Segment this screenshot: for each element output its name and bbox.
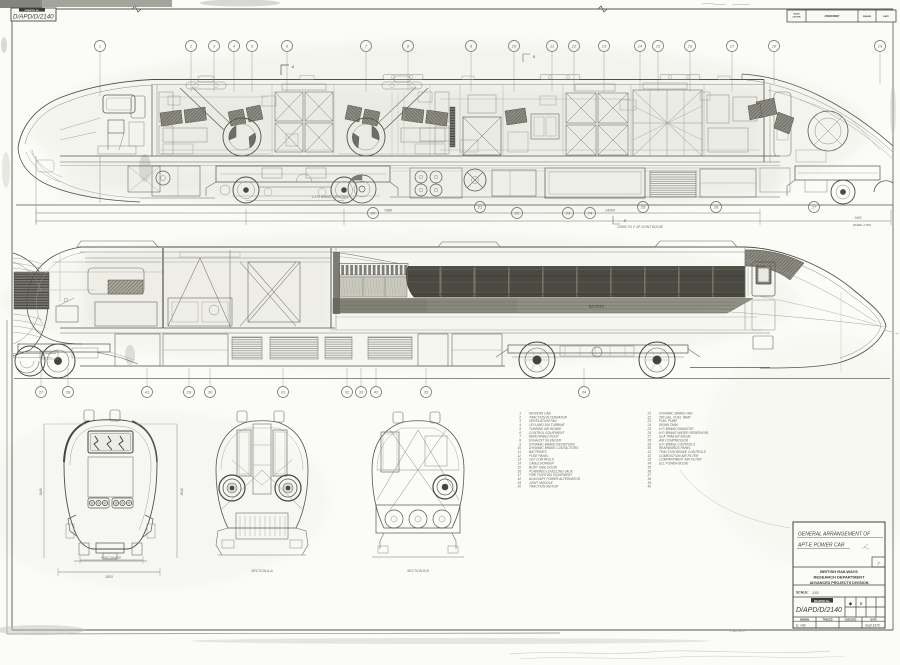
svg-text:© BR 1970: © BR 1970 [730,629,745,633]
svg-text:28: 28 [65,390,71,395]
svg-text:D/APD/D/2140: D/APD/D/2140 [13,14,54,21]
svg-text:12: 12 [572,44,577,49]
svg-text:CHECKED: CHECKED [845,618,857,621]
svg-text:7380: 7380 [384,209,392,213]
svg-text:3040: 3040 [180,488,184,495]
svg-text:D/APD/D/2140: D/APD/D/2140 [796,607,842,614]
svg-text:25: 25 [640,205,646,210]
svg-text:SZ-2016: SZ-2016 [588,304,604,309]
svg-text:◆: ◆ [849,601,853,606]
svg-text:17: 17 [730,44,735,49]
svg-text:41: 41 [145,390,149,395]
svg-text:26: 26 [713,205,719,210]
svg-text:11: 11 [550,44,554,49]
svg-text:35: 35 [424,390,429,395]
svg-text:RESEARCH DEPARTMENT: RESEARCH DEPARTMENT [813,575,865,580]
svg-text:27: 27 [38,390,44,395]
svg-text:32: 32 [345,390,350,395]
svg-text:DRAWN: DRAWN [863,15,872,18]
svg-text:42: 42 [374,390,379,395]
svg-text:18: 18 [772,44,777,49]
svg-text:30: 30 [208,390,213,395]
svg-text:40: 40 [647,485,651,489]
svg-text:14: 14 [638,44,643,49]
svg-text:GENERAL ARRANGEMENT OF: GENERAL ARRANGEMENT OF [798,532,871,538]
svg-text:27: 27 [811,205,817,210]
svg-text:1: 1 [99,44,101,49]
svg-text:APT-E POWER CAR: APT-E POWER CAR [797,543,845,549]
svg-text:TRACTION MOTOR: TRACTION MOTOR [529,485,559,489]
svg-text:16: 16 [688,44,693,49]
svg-text:SECTION B-B: SECTION B-B [407,569,429,573]
svg-text:21: 21 [477,205,482,210]
svg-text:2403: 2403 [853,216,861,220]
svg-text:2-170 WHEEL CENTRES: 2-170 WHEEL CENTRES [311,195,349,199]
svg-text:14300: 14300 [605,209,615,213]
svg-text:23000 TO ¢ OF JOINT BOGIE: 23000 TO ¢ OF JOINT BOGIE [616,225,664,229]
svg-text:BRITISH RAILWAYS: BRITISH RAILWAYS [820,569,858,574]
svg-text:20: 20 [370,211,376,216]
svg-text:E. Hill: E. Hill [796,624,806,628]
svg-text:ADVANCED PROJECTS DIVISION: ADVANCED PROJECTS DIVISION [810,581,869,585]
svg-text:3448: 3448 [39,488,43,495]
svg-text:13: 13 [602,44,607,49]
svg-text:A: A [291,64,295,69]
svg-text:15: 15 [656,44,661,49]
svg-text:DATE: DATE [883,15,889,18]
svg-text:Sept-1970: Sept-1970 [865,624,880,628]
svg-text:SECTION A-A: SECTION A-A [251,569,273,573]
svg-text:23: 23 [565,211,571,216]
svg-text:SCALE:: SCALE: [796,591,809,595]
svg-text:1/50: 1/50 [812,591,819,595]
svg-text:22: 22 [514,211,520,216]
svg-text:20: 20 [516,485,521,489]
svg-text:24: 24 [587,211,593,216]
svg-text:DRAWING No.: DRAWING No. [25,9,40,12]
svg-text:19: 19 [878,44,883,49]
svg-text:TRACED: TRACED [823,618,833,621]
svg-text:2603: 2603 [104,575,113,579]
svg-text:LETTER: LETTER [792,16,801,18]
svg-text:DATE: DATE [870,618,877,621]
svg-text:29: 29 [186,390,192,395]
svg-text:AMENDMENT: AMENDMENT [825,15,841,18]
svg-text:31: 31 [281,390,285,395]
svg-text:33: 33 [359,390,364,395]
svg-text:ISSUE: ISSUE [793,14,800,16]
svg-text:4'-8½″ GAUGE: 4'-8½″ GAUGE [101,556,122,560]
svg-text:WHEEL CTRS: WHEEL CTRS [853,223,871,227]
svg-text:ELL POWER BOGIE: ELL POWER BOGIE [659,462,689,466]
svg-text:10: 10 [512,44,517,49]
svg-text:DRAWING No.: DRAWING No. [814,600,830,603]
svg-text:34: 34 [582,390,587,395]
svg-text:DRAWN: DRAWN [800,618,809,621]
